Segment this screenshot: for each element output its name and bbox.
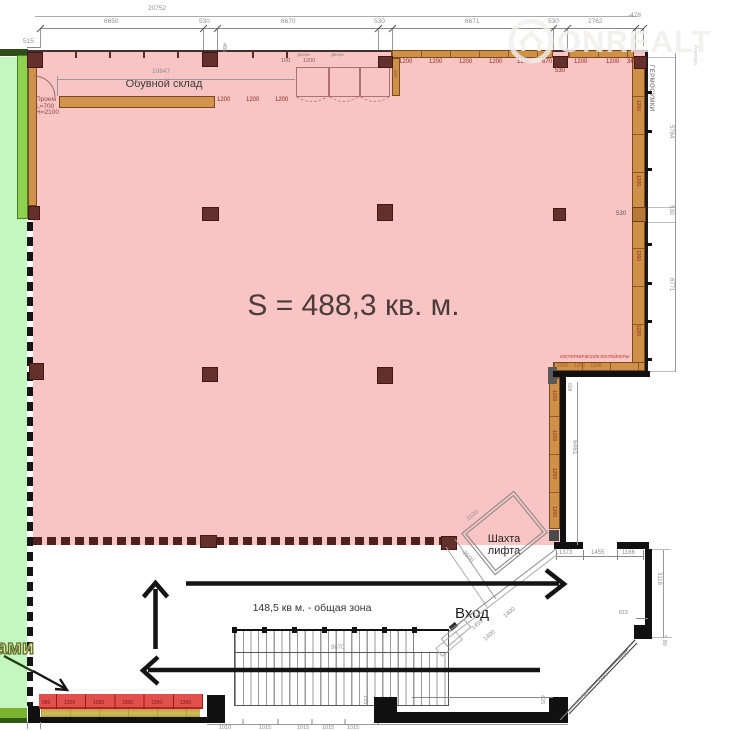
svg-text:ONREALT: ONREALT	[557, 24, 712, 59]
